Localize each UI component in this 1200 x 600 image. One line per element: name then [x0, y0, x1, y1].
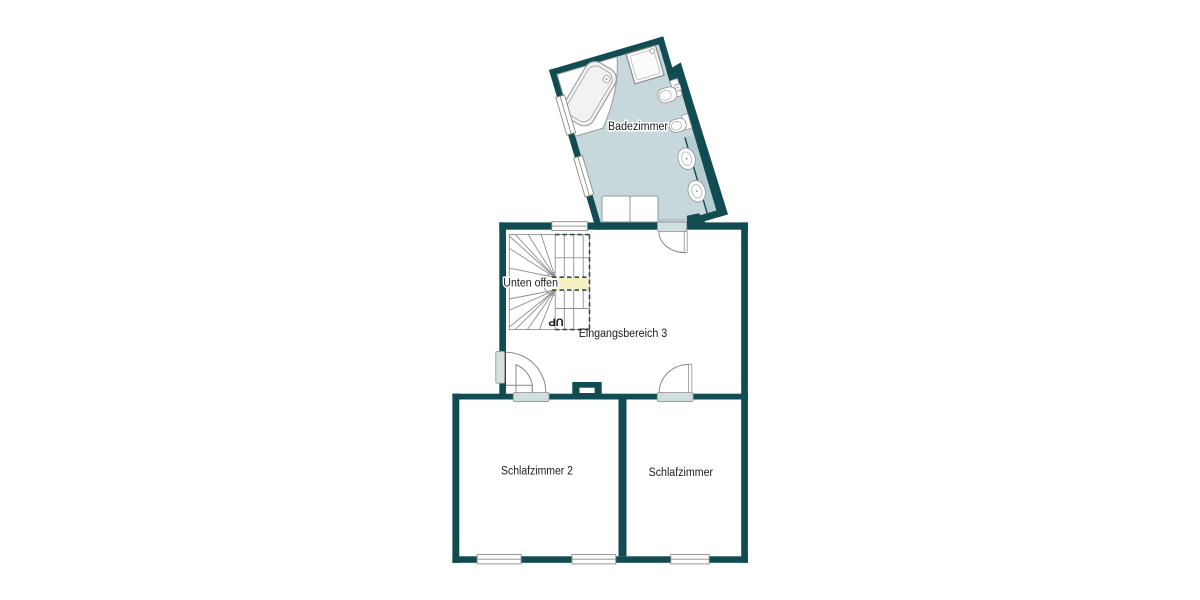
svg-text:UP: UP [548, 316, 563, 328]
svg-text:Eingangsbereich 3: Eingangsbereich 3 [579, 328, 668, 340]
svg-text:Unten offen: Unten offen [503, 277, 558, 289]
svg-text:Schlafzimmer 2: Schlafzimmer 2 [501, 466, 573, 478]
svg-text:Schlafzimmer: Schlafzimmer [649, 467, 714, 479]
svg-text:Badezimmer: Badezimmer [608, 121, 668, 133]
